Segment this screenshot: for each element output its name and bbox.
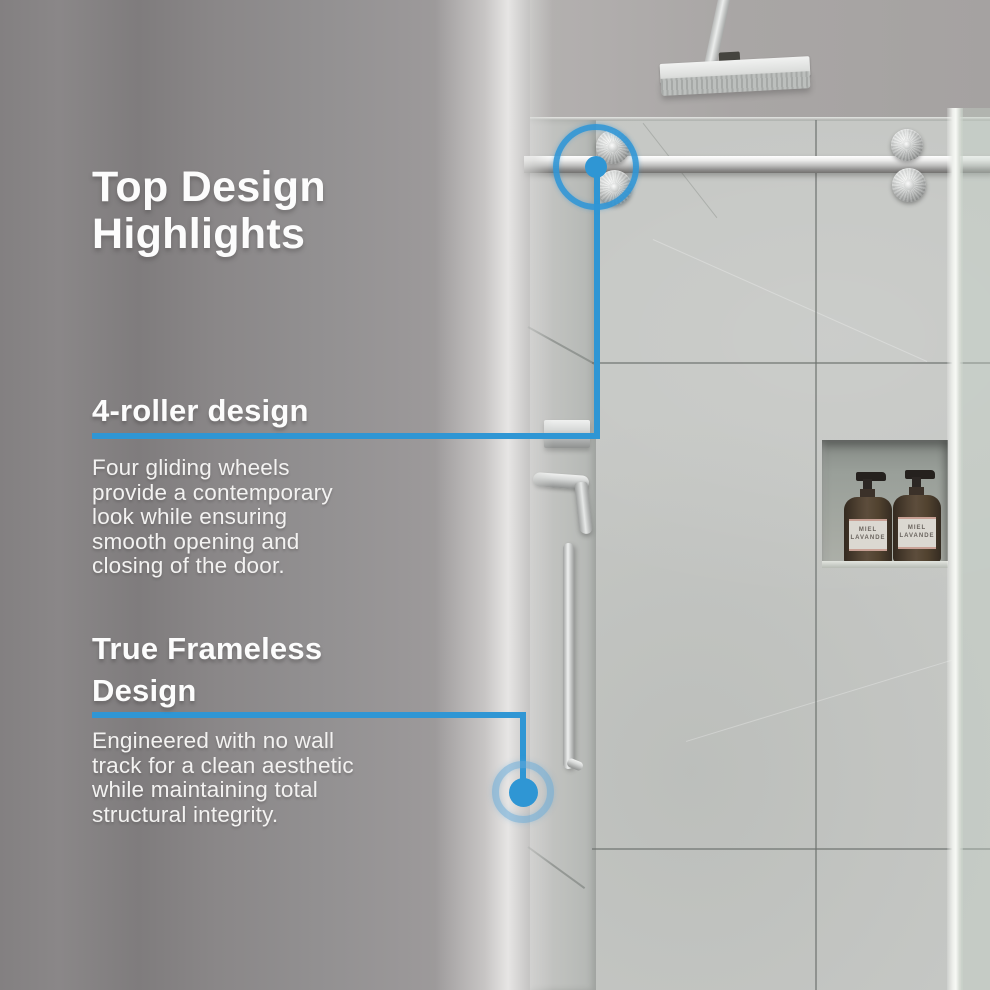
foreground-wall-blur	[435, 0, 553, 990]
callout-underline-frameless	[92, 712, 526, 718]
callout-dot-frameless	[509, 778, 538, 807]
niche-sill	[822, 561, 948, 568]
callout-underline-rollers	[92, 433, 600, 439]
shower-niche: MIEL LAVANDE MIEL LAVANDE	[822, 440, 948, 568]
glass-panel-tint	[961, 108, 990, 990]
tile-grout-line	[592, 848, 990, 850]
tile-grout-line	[592, 362, 990, 364]
page-title: Top Design Highlights	[92, 164, 326, 258]
section-body-roller-design: Four gliding wheels provide a contempora…	[92, 456, 333, 579]
door-roller	[892, 168, 926, 202]
tile-top-edge	[530, 117, 990, 121]
tile-grout-line	[815, 120, 817, 990]
soap-bottle: MIEL LAVANDE	[893, 470, 941, 562]
section-heading-frameless-design: True Frameless Design	[92, 628, 322, 712]
bottle-label: MIEL LAVANDE	[849, 519, 887, 551]
soap-bottle: MIEL LAVANDE	[844, 472, 892, 564]
door-handle-bar	[563, 543, 574, 769]
bottle-label: MIEL LAVANDE	[898, 517, 936, 549]
door-roller	[891, 129, 923, 161]
section-heading-roller-design: 4-roller design	[92, 390, 309, 432]
section-body-frameless-design: Engineered with no wall track for a clea…	[92, 729, 354, 827]
product-infographic: MIEL LAVANDE MIEL LAVANDE	[0, 0, 990, 990]
callout-dot-rollers	[585, 156, 607, 178]
